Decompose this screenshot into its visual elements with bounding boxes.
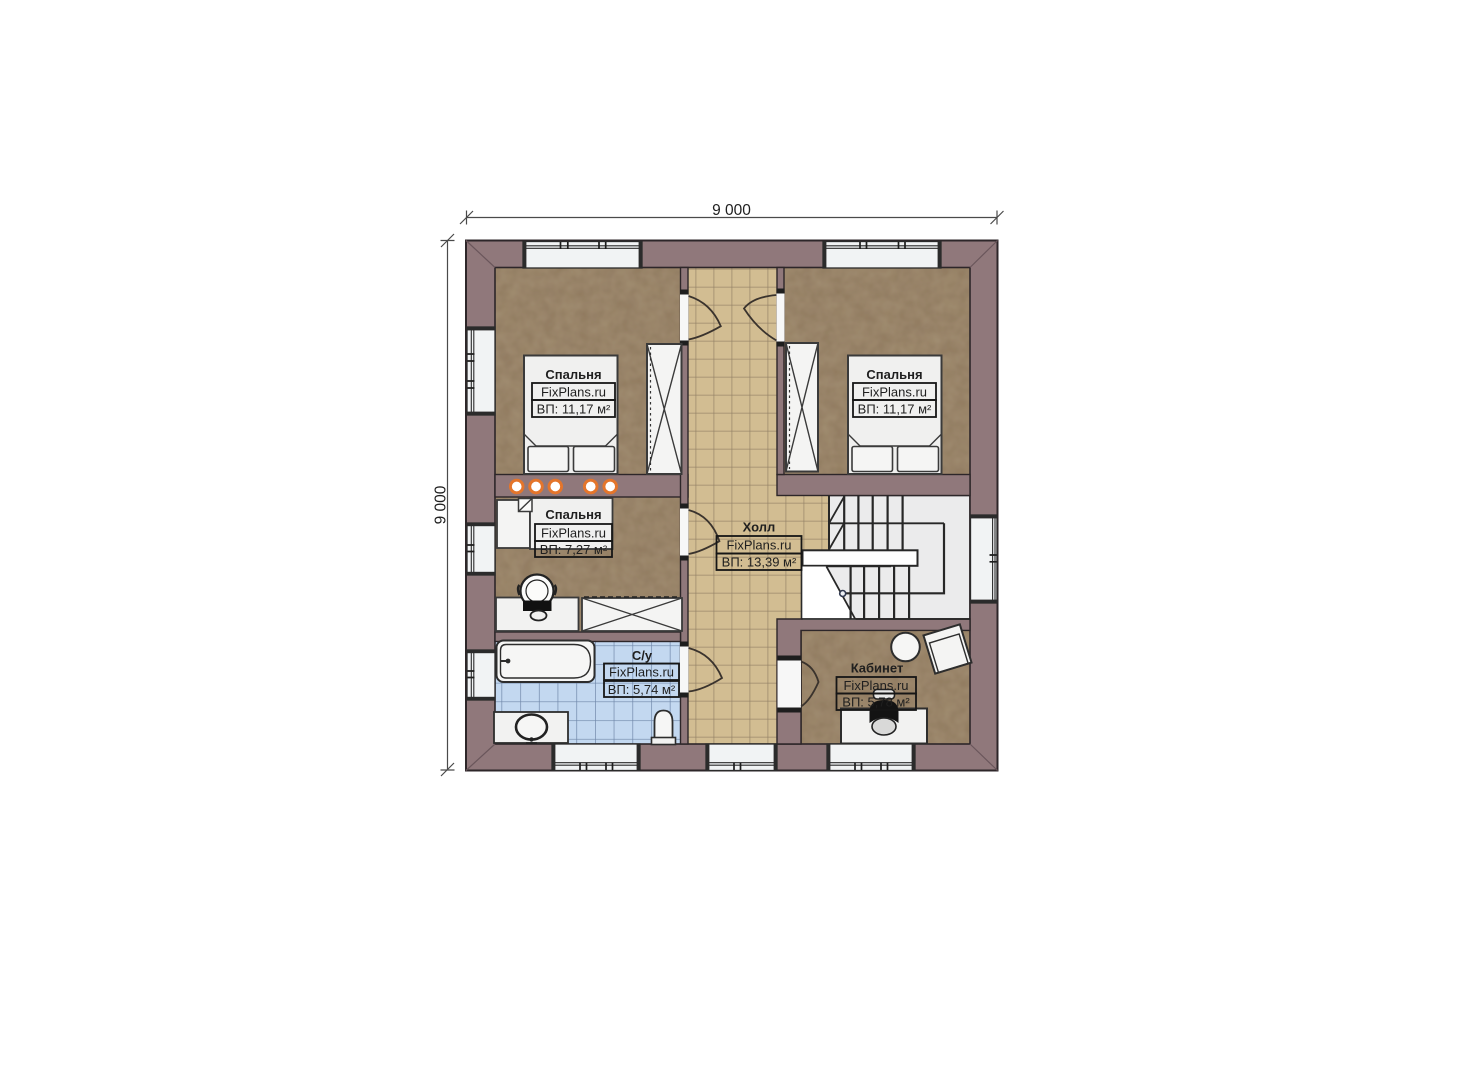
- svg-text:FixPlans.ru: FixPlans.ru: [541, 526, 606, 541]
- svg-text:ВП: 11,17 м²: ВП: 11,17 м²: [537, 402, 611, 417]
- svg-text:9 000: 9 000: [712, 202, 751, 219]
- svg-text:ВП: 5,78 м²: ВП: 5,78 м²: [842, 695, 910, 710]
- svg-text:FixPlans.ru: FixPlans.ru: [609, 665, 674, 680]
- svg-text:Спальня: Спальня: [866, 367, 922, 382]
- svg-text:9 000: 9 000: [433, 485, 450, 524]
- svg-text:FixPlans.ru: FixPlans.ru: [726, 538, 791, 553]
- svg-text:FixPlans.ru: FixPlans.ru: [862, 385, 927, 400]
- svg-text:Спальня: Спальня: [545, 367, 601, 382]
- svg-text:ВП: 13,39 м²: ВП: 13,39 м²: [722, 555, 797, 570]
- svg-text:FixPlans.ru: FixPlans.ru: [541, 385, 606, 400]
- svg-text:Кабинет: Кабинет: [851, 661, 904, 676]
- svg-text:Холл: Холл: [743, 520, 776, 535]
- svg-text:FixPlans.ru: FixPlans.ru: [843, 678, 908, 693]
- svg-text:ВП: 7,27 м²: ВП: 7,27 м²: [540, 542, 608, 557]
- svg-text:С/у: С/у: [632, 648, 653, 663]
- svg-text:Спальня: Спальня: [545, 507, 601, 522]
- svg-text:ВП: 11,17 м²: ВП: 11,17 м²: [858, 402, 932, 417]
- svg-text:ВП: 5,74 м²: ВП: 5,74 м²: [608, 682, 676, 697]
